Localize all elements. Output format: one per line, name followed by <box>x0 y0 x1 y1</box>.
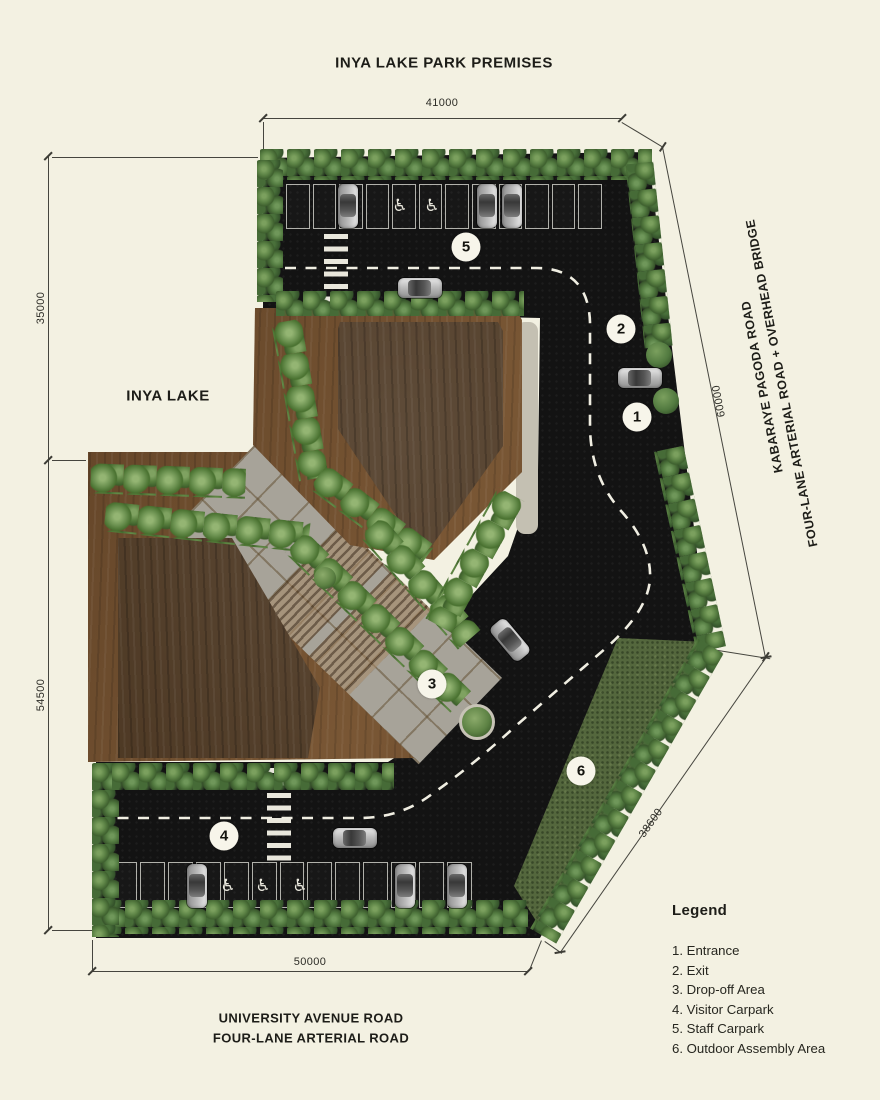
entrance-bush <box>646 342 672 368</box>
marker-drop-off: 3 <box>418 670 447 699</box>
entrance-bush <box>653 388 679 414</box>
legend-item: 4. Visitor Carpark <box>672 1000 825 1020</box>
marker-visitor-carpark: 4 <box>210 822 239 851</box>
parked-car <box>395 864 415 908</box>
parked-car <box>447 864 467 908</box>
accessible-parking-icon: ♿ <box>392 196 407 216</box>
parked-car <box>477 184 497 228</box>
accessible-parking-icon: ♿ <box>292 876 307 896</box>
hedge-top-edge <box>260 149 652 180</box>
marker-staff-carpark: 5 <box>452 233 481 262</box>
lake-label: INYA LAKE <box>126 388 209 405</box>
legend-item: 5. Staff Carpark <box>672 1019 825 1039</box>
hedge-top-left-edge <box>257 160 283 302</box>
drop-off-roundabout <box>459 704 495 740</box>
site-plan: 41000 35000 54500 60000 38600 50000 <box>0 0 880 1100</box>
legend-heading: Legend <box>672 902 825 919</box>
legend-item: 1. Entrance <box>672 941 825 961</box>
legend-item: 2. Exit <box>672 961 825 981</box>
bottom-road-line2: FOUR-LANE ARTERIAL ROAD <box>213 1028 409 1048</box>
accessible-parking-icon: ♿ <box>220 876 235 896</box>
marker-exit: 2 <box>607 315 636 344</box>
hedge-above-visitor-carpark <box>112 763 394 790</box>
driving-car <box>618 368 662 388</box>
accessible-parking-icon: ♿ <box>255 876 270 896</box>
driving-car <box>398 278 442 298</box>
parked-car <box>338 184 358 228</box>
parked-car <box>502 184 522 228</box>
legend-item: 3. Drop-off Area <box>672 980 825 1000</box>
driving-car <box>333 828 377 848</box>
bottom-road-line1: UNIVERSITY AVENUE ROAD <box>213 1009 409 1029</box>
tree-row-lower-deck-top <box>90 463 246 498</box>
bottom-road-label: UNIVERSITY AVENUE ROAD FOUR-LANE ARTERIA… <box>213 1009 409 1048</box>
accessible-parking-icon: ♿ <box>424 196 439 216</box>
parked-car <box>187 864 207 908</box>
page-title: INYA LAKE PARK PREMISES <box>335 55 553 72</box>
legend: Legend 1. Entrance 2. Exit 3. Drop-off A… <box>672 902 825 1058</box>
plaza-planter-tree <box>314 567 336 589</box>
legend-item: 6. Outdoor Assembly Area <box>672 1039 825 1059</box>
marker-entrance: 1 <box>623 403 652 432</box>
marker-assembly-area: 6 <box>567 757 596 786</box>
